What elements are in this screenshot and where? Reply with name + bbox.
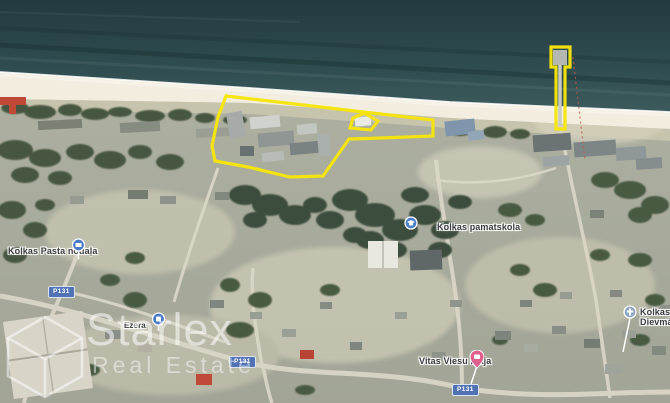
map-canvas[interactable]: Kolkas Pasta nodaļa Ezera Kolkas pamatsk…	[0, 0, 670, 403]
poi-pin[interactable]	[152, 312, 165, 332]
label-ezera[interactable]: Ezera	[124, 321, 146, 330]
road-badge-p131-left: P131	[48, 286, 75, 298]
label-church-line2: Dievmāt	[640, 317, 670, 327]
road-badge-p131-right: P131	[452, 384, 479, 396]
label-church-line1: Kolkas Jū	[640, 307, 670, 317]
label-school[interactable]: Kolkas pamatskola	[437, 222, 520, 232]
school-icon[interactable]	[404, 216, 418, 230]
church-pin[interactable]	[620, 304, 638, 354]
post-office-pin[interactable]	[72, 238, 85, 260]
lodging-pin[interactable]	[466, 350, 484, 386]
satellite-imagery	[0, 0, 670, 403]
label-church[interactable]: Kolkas Jū Dievmāt	[640, 307, 670, 328]
road-badge-p131-center: P131	[229, 356, 256, 368]
